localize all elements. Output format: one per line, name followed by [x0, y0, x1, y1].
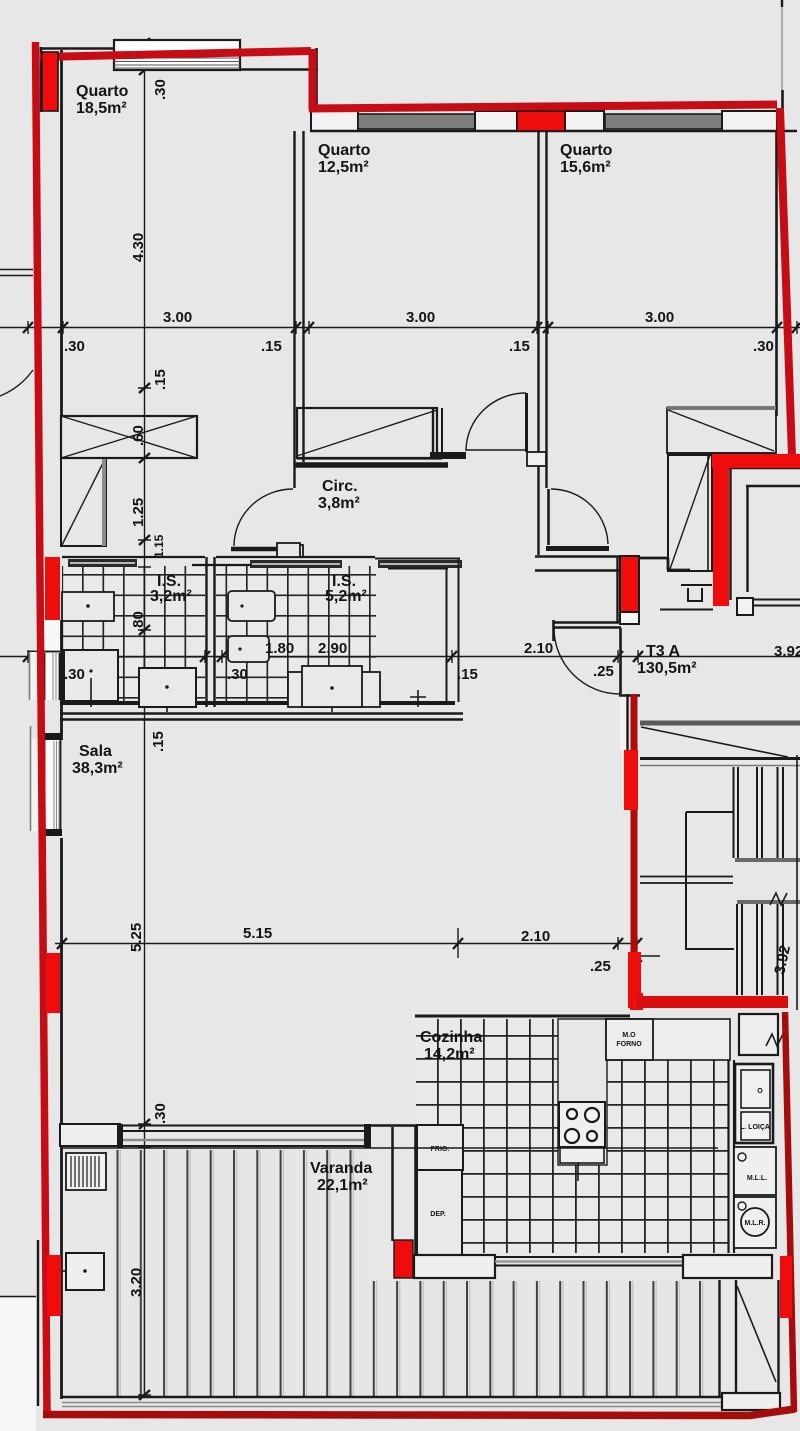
- svg-text:2.90: 2.90: [318, 640, 347, 657]
- svg-text:M.O: M.O: [622, 1032, 636, 1039]
- svg-text:.15: .15: [152, 369, 169, 390]
- svg-text:.15: .15: [261, 338, 282, 355]
- svg-text:.30: .30: [64, 666, 85, 683]
- svg-text:M.L.L.: M.L.L.: [747, 1175, 767, 1182]
- svg-text:3.00: 3.00: [645, 309, 674, 326]
- svg-text:DEP.: DEP.: [430, 1211, 445, 1218]
- svg-text:3.20: 3.20: [128, 1268, 145, 1297]
- svg-text:.25: .25: [590, 958, 611, 975]
- svg-text:3.92: 3.92: [774, 643, 800, 660]
- svg-text:L. LOIÇA: L. LOIÇA: [740, 1124, 770, 1131]
- svg-text:.30: .30: [227, 666, 248, 683]
- svg-text:5,2m²: 5,2m²: [325, 588, 367, 605]
- svg-text:.30: .30: [64, 338, 85, 355]
- svg-text:.25: .25: [593, 663, 614, 680]
- svg-text:FRIG.: FRIG.: [431, 1146, 450, 1153]
- svg-text:5.25: 5.25: [128, 923, 145, 952]
- svg-text:.15: .15: [457, 666, 478, 683]
- svg-text:M.L.R.: M.L.R.: [745, 1220, 766, 1227]
- svg-text:FORNO: FORNO: [616, 1041, 642, 1048]
- svg-text:5.15: 5.15: [243, 925, 272, 942]
- svg-text:38,3m²: 38,3m²: [72, 760, 123, 777]
- svg-text:22,1m²: 22,1m²: [317, 1177, 368, 1194]
- svg-text:15,6m²: 15,6m²: [560, 159, 611, 176]
- svg-text:Quarto: Quarto: [560, 142, 613, 159]
- svg-text:Cozinha: Cozinha: [420, 1029, 482, 1046]
- svg-text:Varanda: Varanda: [310, 1160, 372, 1177]
- svg-text:Circ.: Circ.: [322, 478, 358, 495]
- svg-text:1.25: 1.25: [130, 498, 147, 527]
- svg-text:2.10: 2.10: [521, 928, 550, 945]
- svg-text:2.10: 2.10: [524, 640, 553, 657]
- svg-text:12,5m²: 12,5m²: [318, 159, 369, 176]
- svg-text:.30: .30: [152, 1103, 169, 1124]
- svg-text:3.00: 3.00: [406, 309, 435, 326]
- svg-text:.80: .80: [130, 611, 147, 632]
- svg-text:18,5m²: 18,5m²: [76, 100, 127, 117]
- svg-text:4.30: 4.30: [130, 233, 147, 262]
- svg-text:.30: .30: [152, 79, 169, 100]
- svg-text:3.00: 3.00: [163, 309, 192, 326]
- svg-text:Quarto: Quarto: [318, 142, 371, 159]
- svg-text:.15: .15: [150, 731, 167, 752]
- svg-text:1.80: 1.80: [265, 640, 294, 657]
- svg-text:.30: .30: [753, 338, 774, 355]
- svg-text:3,8m²: 3,8m²: [318, 495, 360, 512]
- svg-text:O: O: [757, 1088, 763, 1095]
- svg-text:14,2m²: 14,2m²: [424, 1046, 475, 1063]
- svg-text:.60: .60: [130, 425, 147, 446]
- svg-text:T3 A: T3 A: [646, 643, 681, 660]
- svg-text:130,5m²: 130,5m²: [637, 660, 697, 677]
- svg-text:Quarto: Quarto: [76, 83, 129, 100]
- svg-text:1.15: 1.15: [152, 534, 166, 558]
- svg-text:Sala: Sala: [79, 743, 112, 760]
- svg-text:3,2m²: 3,2m²: [150, 588, 192, 605]
- svg-text:.15: .15: [509, 338, 530, 355]
